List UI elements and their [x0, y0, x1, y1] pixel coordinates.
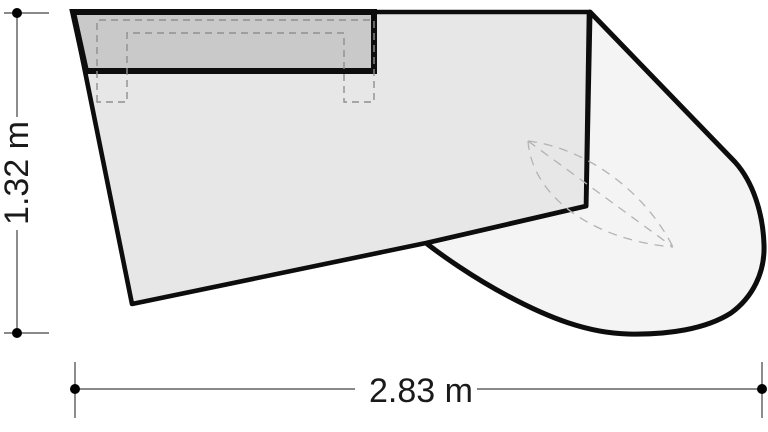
dimension-endpoint-dot	[757, 384, 767, 394]
height-dimension-label: 1.32 m	[0, 121, 36, 225]
width-dimension-label: 2.83 m	[369, 372, 473, 410]
furniture-plan	[73, 12, 764, 334]
width-dimension: 2.83 m	[70, 362, 767, 418]
dimension-endpoint-dot	[12, 8, 22, 18]
technical-drawing-canvas: 1.32 m 2.83 m	[0, 0, 768, 432]
top-band-shape	[73, 12, 374, 71]
dimension-endpoint-dot	[12, 328, 22, 338]
height-dimension: 1.32 m	[0, 8, 49, 338]
dimension-endpoint-dot	[70, 384, 80, 394]
furniture-plan-svg: 1.32 m 2.83 m	[0, 0, 768, 432]
